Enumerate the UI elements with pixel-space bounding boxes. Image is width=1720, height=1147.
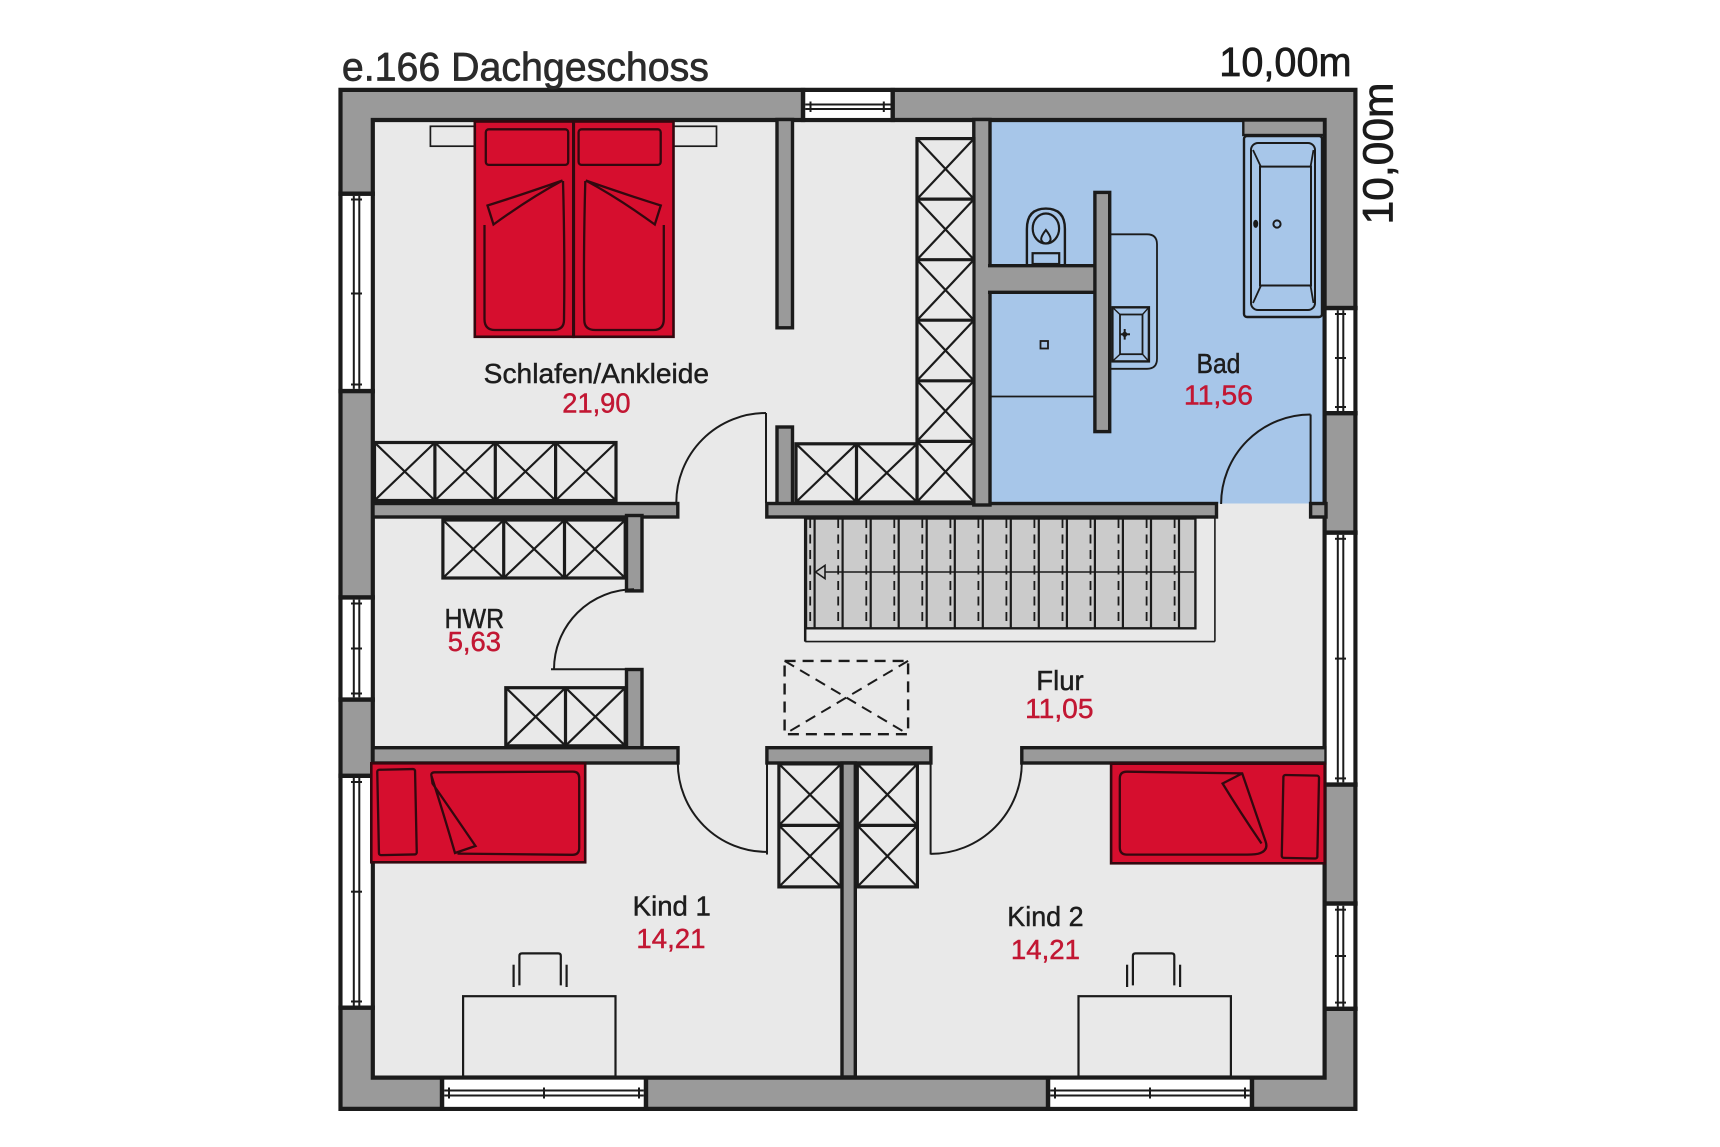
svg-text:Kind 2: Kind 2	[1007, 901, 1083, 932]
svg-text:e.166 Dachgeschoss: e.166 Dachgeschoss	[342, 46, 709, 90]
svg-text:14,21: 14,21	[636, 923, 705, 954]
svg-text:Schlafen/Ankleide: Schlafen/Ankleide	[484, 358, 709, 389]
svg-text:11,56: 11,56	[1184, 379, 1253, 410]
svg-text:10,00m: 10,00m	[1219, 39, 1351, 85]
svg-text:10,00m: 10,00m	[1356, 82, 1403, 224]
svg-text:Kind 1: Kind 1	[633, 891, 711, 922]
svg-text:Flur: Flur	[1036, 665, 1083, 696]
svg-text:21,90: 21,90	[562, 387, 630, 418]
svg-text:11,05: 11,05	[1025, 693, 1093, 724]
svg-text:5,63: 5,63	[448, 626, 501, 657]
svg-text:14,21: 14,21	[1011, 934, 1080, 965]
svg-text:Bad: Bad	[1197, 348, 1241, 379]
